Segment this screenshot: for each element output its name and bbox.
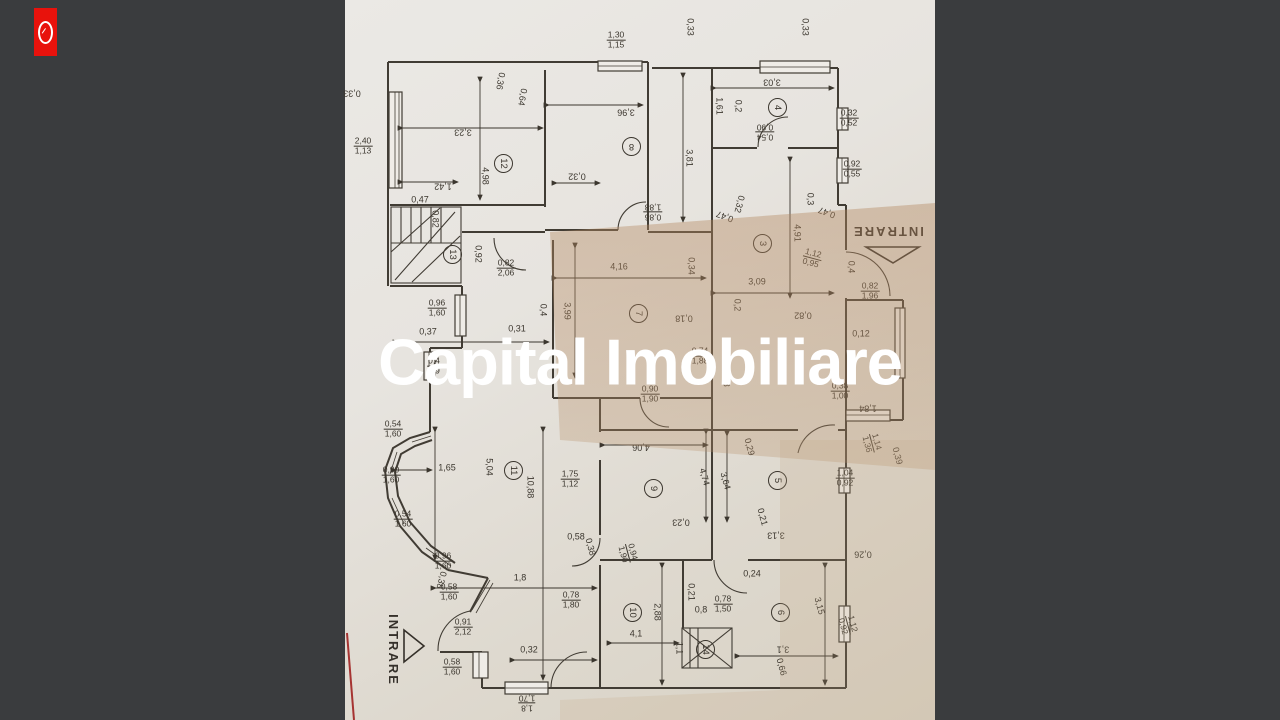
dimension-label: 0,961,60	[428, 299, 447, 318]
watermark-text: Capital Imobiliare	[378, 325, 902, 400]
dimension-label: 2,401,13	[354, 137, 373, 156]
dimension-label: 0,961,60	[434, 552, 453, 571]
room-number-3: 3	[753, 234, 772, 253]
dimension-label: 0,541,60	[394, 510, 413, 529]
dimension-label: 0,24	[743, 569, 761, 578]
dimension-label: 0,821,96	[861, 282, 880, 301]
room-number-12: 12	[494, 154, 513, 173]
room-number-8: 8	[622, 137, 641, 156]
room-number-11: 11	[504, 461, 523, 480]
dimension-label: 0,8	[695, 605, 708, 614]
dimension-label: 1,141,36	[861, 432, 884, 455]
room-number-4: 4	[768, 98, 787, 117]
dimension-label: 3,15	[812, 596, 826, 615]
dimension-label: 4,98	[480, 167, 489, 185]
dimension-label: 1,81,70	[519, 694, 536, 713]
dimension-label: 5,04	[484, 458, 493, 476]
dimension-label: 3,99	[562, 302, 571, 320]
dimension-label: 3,03	[763, 77, 781, 86]
dimension-label: 0,320,52	[840, 109, 859, 128]
entrance-label-bottom: INTRARE	[386, 614, 400, 686]
dimension-label: 0,21	[755, 507, 769, 526]
dimension-label: 1,301,15	[607, 31, 626, 50]
dimension-label: 0,822,06	[497, 259, 516, 278]
dimension-label: 1,751,12	[561, 470, 580, 489]
dimension-label: 1,65	[438, 463, 456, 472]
dimension-label: 4,1	[630, 629, 643, 638]
dimension-label: 0,861,88	[644, 203, 663, 222]
room-number-13: 13	[443, 245, 462, 264]
dimension-label: 0,912,12	[454, 618, 473, 637]
room-number-6: 6	[771, 603, 790, 622]
dimension-label: 3,96	[617, 107, 635, 116]
dimension-label: 0,2	[733, 100, 742, 113]
dimension-label: 0,18	[675, 313, 693, 322]
dimension-label: 0,3	[805, 193, 814, 206]
dimension-label: 0,64	[516, 88, 528, 107]
dimension-label: 0,32	[520, 645, 538, 654]
dimension-label: 0,21	[686, 583, 695, 601]
dimension-label: 0,82	[794, 310, 812, 319]
dimension-label: 0,92	[473, 245, 482, 263]
dimension-label: 0,47	[817, 205, 837, 220]
room-number-9: 9	[644, 479, 663, 498]
dimension-label: 3,64	[718, 471, 732, 490]
dimension-label: 0,66	[774, 657, 788, 676]
dimension-label: 0,581,60	[440, 583, 459, 602]
room-number-5: 5	[768, 471, 787, 490]
dimension-label: 0,4	[538, 304, 547, 317]
dimension-label: 1,040,92	[836, 469, 855, 488]
dimension-label: 0,36	[494, 72, 506, 91]
dimension-label: 4,74	[697, 467, 711, 486]
dimension-label: 0,33	[800, 18, 809, 36]
dimension-label: 1,8	[514, 573, 527, 582]
screen: { "background": {"color": "#3a3c3e"}, "w…	[0, 0, 1280, 720]
dimension-label: 1,42	[434, 181, 452, 190]
room-number-7: 7	[629, 304, 648, 323]
dimension-label: 2,88	[652, 603, 661, 621]
dimension-label: 0,541,60	[384, 420, 403, 439]
dimension-label: 4,06	[632, 442, 650, 451]
dimension-label: 1,84	[859, 403, 877, 412]
dimension-label: 0,941,90	[617, 542, 640, 565]
room-number-14: 14	[696, 640, 715, 659]
dimension-label: 3,23	[454, 127, 472, 136]
dimension-label: 0,781,50	[714, 595, 733, 614]
dimension-label: 0,540,90	[756, 123, 775, 142]
dimension-label: 0,33	[343, 88, 361, 97]
dimension-label: 0,58	[567, 532, 585, 541]
dimension-label: 1,61	[714, 97, 723, 115]
dimension-label: 0,39	[890, 446, 904, 465]
dimension-label: 0,581,60	[443, 658, 462, 677]
capital-imobiliare-logo	[34, 8, 57, 56]
dimension-label: 1,120,92	[837, 614, 860, 637]
dimension-label: 0,26	[854, 549, 872, 558]
dimension-label: 3,1	[777, 644, 790, 653]
dimension-label: 0,82	[430, 210, 439, 228]
dimension-label: 4,91	[792, 224, 801, 242]
dimension-label: 0,33	[685, 18, 694, 36]
dimension-label: 3,81	[684, 149, 693, 167]
dimension-label: 0,47	[411, 195, 429, 204]
dimension-label: 0,34	[686, 257, 695, 275]
dimension-label: 0,23	[672, 517, 690, 526]
dimension-label: 0,781,80	[562, 591, 581, 610]
entrance-label-top: INTRARE	[852, 224, 924, 238]
dimension-label: 3,09	[748, 277, 766, 286]
dimension-label: 0,32	[568, 171, 586, 180]
dimension-label: 0,38	[583, 537, 597, 556]
dimension-label: 1,120,95	[801, 247, 824, 270]
dimension-label: 1,1	[674, 642, 683, 655]
dimension-label: 0,2	[732, 299, 741, 312]
room-number-10: 10	[623, 603, 642, 622]
dimension-label: 10,88	[525, 476, 534, 499]
logo-oval-icon	[38, 21, 53, 44]
dimension-label: 3,13	[767, 530, 785, 539]
dimension-label: 0,920,55	[843, 160, 862, 179]
dimension-label: 0,32	[732, 194, 746, 213]
dimension-label: 0,4	[846, 261, 855, 274]
dimension-label: 0,901,60	[382, 466, 401, 485]
dimension-label: 4,16	[610, 262, 628, 271]
dimension-label: 0,29	[742, 437, 756, 456]
